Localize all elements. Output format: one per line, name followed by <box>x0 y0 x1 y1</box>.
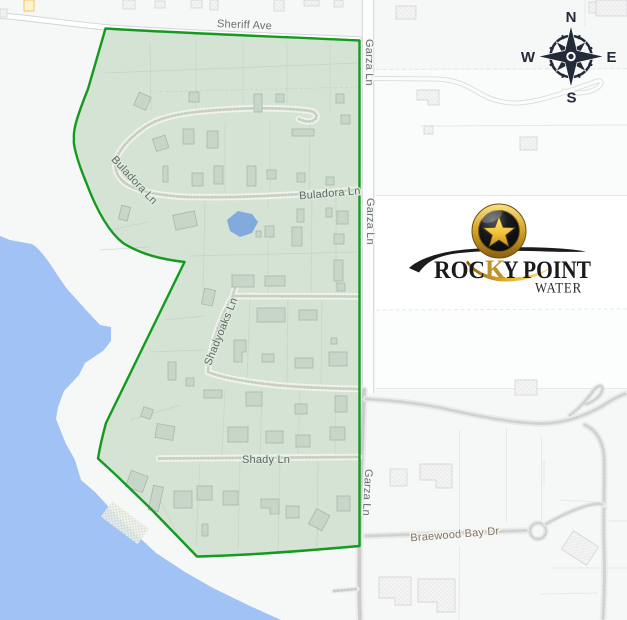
svg-text:ROC: ROC <box>434 257 485 284</box>
svg-text:Garza Ln: Garza Ln <box>363 39 375 86</box>
svg-text:Sheriff Ave: Sheriff Ave <box>217 18 272 32</box>
svg-text:N: N <box>566 9 577 26</box>
svg-text:Shady Ln: Shady Ln <box>242 454 290 466</box>
svg-text:Garza Ln: Garza Ln <box>364 198 376 245</box>
svg-text:WATER: WATER <box>535 281 582 297</box>
svg-text:Garza Ln: Garza Ln <box>360 469 374 516</box>
svg-text:S: S <box>566 90 576 107</box>
svg-text:W: W <box>521 49 536 66</box>
svg-text:E: E <box>606 49 616 66</box>
